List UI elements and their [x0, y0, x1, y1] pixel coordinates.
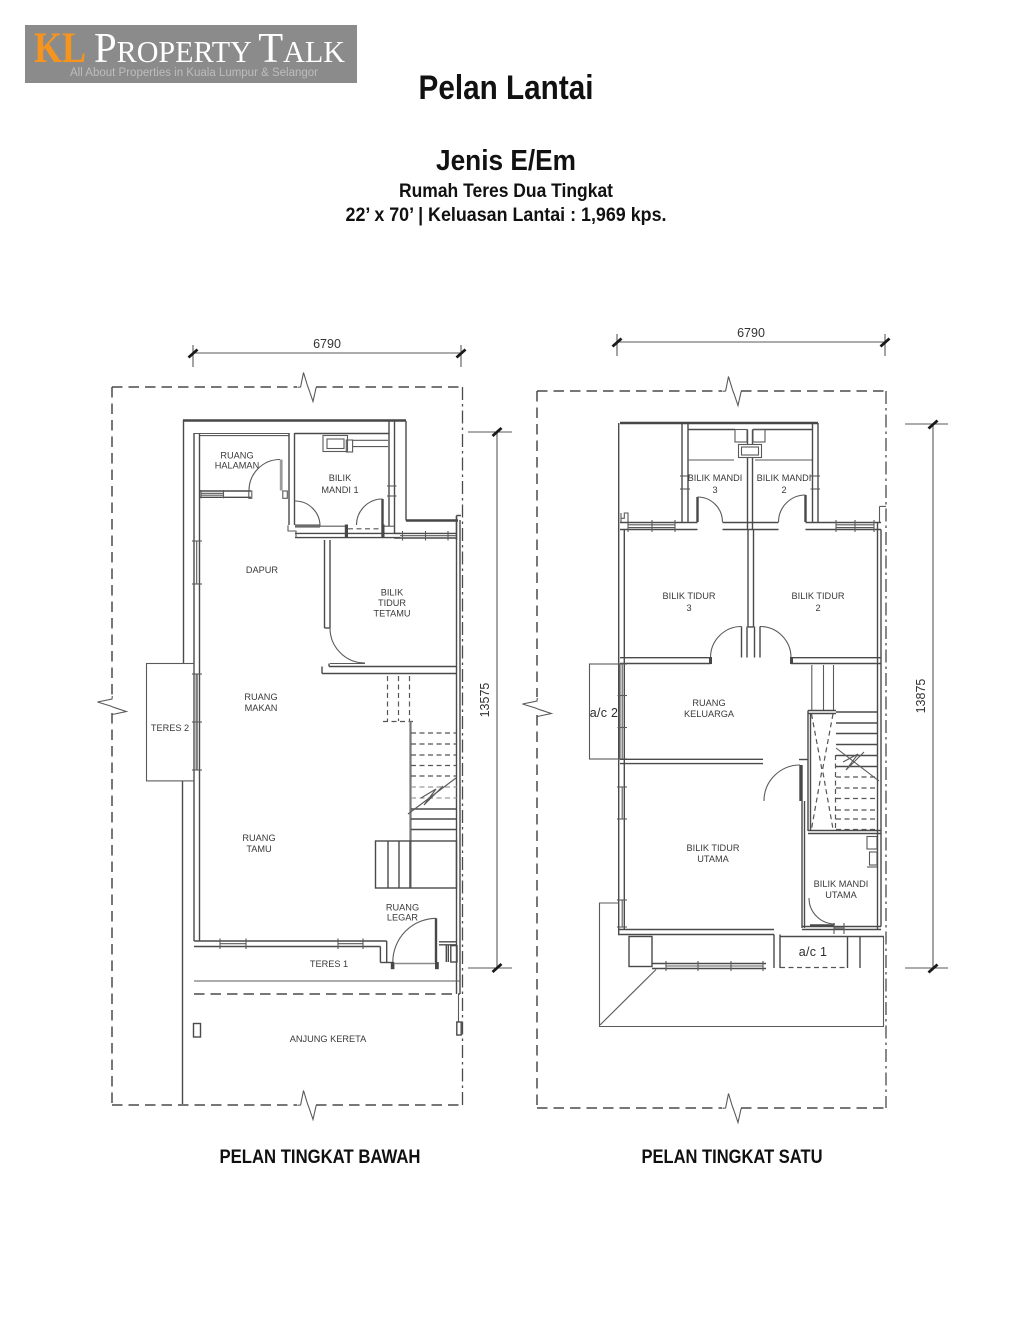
- svg-text:RUANG: RUANG: [244, 692, 277, 702]
- svg-text:TETAMU: TETAMU: [373, 609, 410, 619]
- svg-text:DAPUR: DAPUR: [246, 565, 279, 575]
- svg-text:MAKAN: MAKAN: [245, 703, 278, 713]
- svg-text:RUANG: RUANG: [220, 451, 253, 461]
- svg-text:BILIK TIDUR: BILIK TIDUR: [687, 843, 740, 853]
- svg-text:22’ x 70’ | Keluasan Lantai :: 22’ x 70’ | Keluasan Lantai : 1,969 kps.: [346, 204, 667, 226]
- svg-text:TAMU: TAMU: [246, 844, 271, 854]
- svg-text:MANDI 1: MANDI 1: [321, 485, 358, 495]
- svg-text:PELAN TINGKAT BAWAH: PELAN TINGKAT BAWAH: [220, 1146, 421, 1168]
- svg-text:BILIK: BILIK: [329, 473, 352, 483]
- svg-text:a/c 1: a/c 1: [799, 945, 828, 959]
- svg-text:HALAMAN: HALAMAN: [215, 461, 259, 471]
- svg-text:UTAMA: UTAMA: [825, 890, 857, 900]
- svg-text:RUANG: RUANG: [242, 833, 275, 843]
- svg-text:All About Properties in Kuala: All About Properties in Kuala Lumpur & S…: [70, 67, 318, 79]
- svg-text:Pelan Lantai: Pelan Lantai: [419, 69, 594, 107]
- svg-text:BILIK TIDUR: BILIK TIDUR: [663, 591, 716, 601]
- svg-text:LEGAR: LEGAR: [387, 913, 419, 923]
- svg-text:BILIK MANDI: BILIK MANDI: [688, 473, 743, 483]
- svg-text:ANJUNG KERETA: ANJUNG KERETA: [290, 1034, 367, 1044]
- svg-text:UTAMA: UTAMA: [697, 854, 729, 864]
- svg-text:BILIK MANDI: BILIK MANDI: [757, 473, 812, 483]
- svg-text:a/c 2: a/c 2: [590, 706, 619, 720]
- svg-text:6790: 6790: [313, 337, 341, 351]
- svg-text:3: 3: [712, 485, 717, 495]
- svg-text:RUANG: RUANG: [692, 698, 725, 708]
- svg-text:13575: 13575: [478, 683, 492, 718]
- svg-text:2: 2: [815, 603, 820, 613]
- svg-text:TERES 2: TERES 2: [151, 723, 189, 733]
- svg-text:TERES 1: TERES 1: [310, 959, 348, 969]
- svg-text:6790: 6790: [737, 326, 765, 340]
- svg-text:13875: 13875: [914, 679, 928, 714]
- svg-text:BILIK TIDUR: BILIK TIDUR: [792, 591, 845, 601]
- svg-text:BILIK: BILIK: [381, 588, 404, 598]
- svg-text:2: 2: [781, 485, 786, 495]
- svg-text:KELUARGA: KELUARGA: [684, 709, 735, 719]
- svg-text:KL: KL: [34, 25, 86, 72]
- svg-text:RUANG: RUANG: [386, 903, 419, 913]
- svg-text:BILIK MANDI: BILIK MANDI: [814, 879, 869, 889]
- svg-text:PELAN TINGKAT SATU: PELAN TINGKAT SATU: [642, 1146, 823, 1168]
- svg-text:Jenis E/Em: Jenis E/Em: [436, 145, 576, 177]
- svg-text:Rumah Teres Dua Tingkat: Rumah Teres Dua Tingkat: [399, 180, 613, 202]
- svg-text:TIDUR: TIDUR: [378, 598, 406, 608]
- svg-text:3: 3: [686, 603, 691, 613]
